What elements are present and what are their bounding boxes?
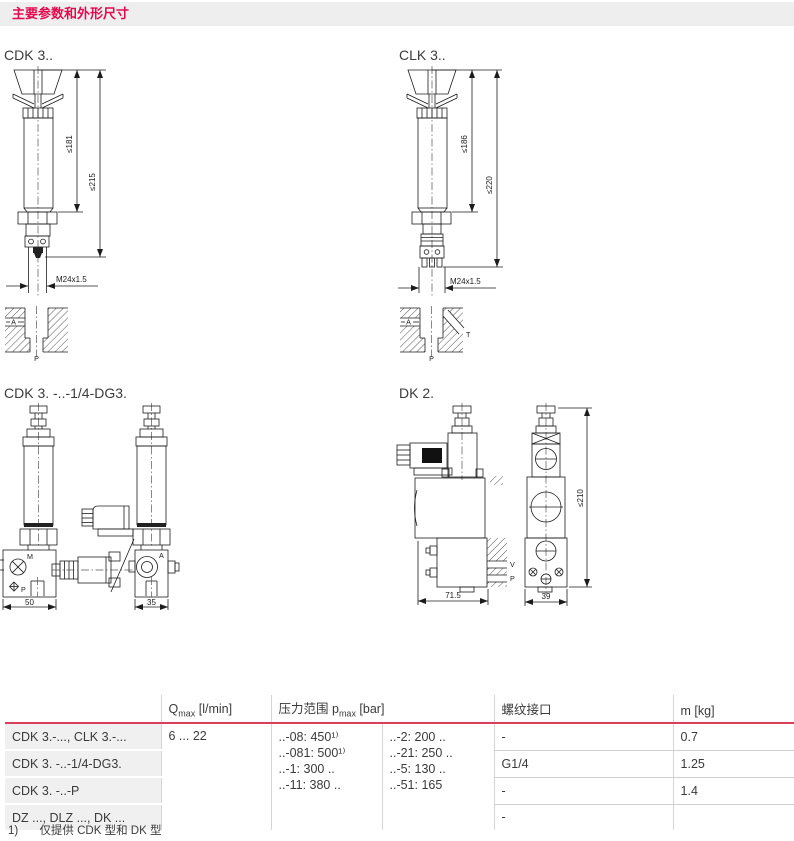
mass-cell: 1.25 xyxy=(673,750,794,777)
port-p-label: P xyxy=(429,354,434,363)
pressure-col-b-cell: ..-2: 200 .. ..-21: 250 .. ..-5: 130 .. … xyxy=(382,723,494,830)
port-p-label: P xyxy=(510,574,515,583)
thread-cell: - xyxy=(494,804,673,830)
pressure-unit: [bar] xyxy=(356,702,385,716)
port-a-label: A xyxy=(406,318,411,327)
spec-table: Qmax [l/min] 压力范围 pmax [bar] 螺纹接口 m [kg]… xyxy=(5,695,794,830)
dk2-technical-drawing: V P 71.5 39 ≤210 xyxy=(390,398,660,618)
pressure-col-a-cell: ..-08: 450¹⁾ ..-081: 500¹⁾ ..-1: 300 .. … xyxy=(271,723,382,830)
cdk3-technical-drawing: M24x1.5 ≤181 ≤215 A P xyxy=(0,60,250,365)
mass-cell: 1.4 xyxy=(673,777,794,804)
footnote: 1) 仅提供 CDK 型和 DK 型 xyxy=(8,822,161,838)
header-pressure: 压力范围 pmax [bar] xyxy=(271,695,494,723)
qmax-value-cell: 6 ... 22 xyxy=(161,723,271,830)
clk3-technical-drawing: M24x1.5 ≤186 ≤220 A P T xyxy=(390,60,650,365)
qmax-unit: [l/min] xyxy=(195,702,232,716)
qmax-main: Q xyxy=(169,702,179,716)
port-a-label: A xyxy=(11,318,16,327)
datasheet-page: 主要参数和外形尺寸 CDK 3.. CLK 3.. CDK 3. -..-1/4… xyxy=(0,0,794,841)
port-t-label: T xyxy=(466,330,471,339)
footnote-marker: 1) xyxy=(8,825,18,837)
section-header-bar: 主要参数和外形尺寸 xyxy=(0,2,794,26)
pressure-line: ..-081: 500¹⁾ xyxy=(279,745,382,761)
pressure-line: ..-2: 200 .. xyxy=(390,729,494,745)
dim-height-label: ≤210 xyxy=(576,489,585,507)
port-a-label: A xyxy=(159,551,164,560)
dim-inner-label: ≤186 xyxy=(460,135,469,153)
row-label: CDK 3. -..-1/4-DG3. xyxy=(5,750,161,777)
cdk3-dg3-technical-drawing: M P A 50 35 xyxy=(0,398,220,618)
pressure-line: ..-51: 165 xyxy=(390,777,494,793)
header-mass: m [kg] xyxy=(673,695,794,723)
dim-outer-label: ≤220 xyxy=(485,176,494,194)
mass-cell xyxy=(673,804,794,830)
pressure-line: ..-08: 450¹⁾ xyxy=(279,729,382,745)
dim-inner-label: ≤181 xyxy=(65,135,74,153)
header-qmax: Qmax [l/min] xyxy=(161,695,271,723)
thread-cell: - xyxy=(494,777,673,804)
width-50-label: 50 xyxy=(25,598,34,607)
row-label: CDK 3.-..., CLK 3.-... xyxy=(5,723,161,750)
port-v-label: V xyxy=(510,560,515,569)
dim-outer-label: ≤215 xyxy=(88,173,97,191)
pressure-line: ..-21: 250 .. xyxy=(390,745,494,761)
footnote-text: 仅提供 CDK 型和 DK 型 xyxy=(39,825,161,837)
table-header-row: Qmax [l/min] 压力范围 pmax [bar] 螺纹接口 m [kg] xyxy=(5,695,794,723)
header-thread: 螺纹接口 xyxy=(494,695,673,723)
pressure-line: ..-5: 130 .. xyxy=(390,761,494,777)
thread-cell: G1/4 xyxy=(494,750,673,777)
thread-dim-label: M24x1.5 xyxy=(450,277,481,286)
table-row: CDK 3.-..., CLK 3.-... 6 ... 22 ..-08: 4… xyxy=(5,723,794,750)
mass-cell: 0.7 xyxy=(673,723,794,750)
thread-cell: - xyxy=(494,723,673,750)
width-35-label: 35 xyxy=(147,598,156,607)
thread-dim-label: M24x1.5 xyxy=(56,275,87,284)
width-71-label: 71.5 xyxy=(445,591,461,600)
page-title: 主要参数和外形尺寸 xyxy=(0,2,129,26)
pressure-main: 压力范围 p xyxy=(279,702,339,716)
pressure-line: ..-11: 380 .. xyxy=(279,777,382,793)
pressure-line: ..-1: 300 .. xyxy=(279,761,382,777)
pressure-sub: max xyxy=(339,708,356,718)
qmax-sub: max xyxy=(178,708,195,718)
port-m-label: M xyxy=(27,552,33,561)
header-empty xyxy=(5,695,161,723)
row-label: CDK 3. -..-P xyxy=(5,777,161,804)
port-p-label: P xyxy=(21,585,26,594)
port-p-label: P xyxy=(34,354,39,363)
width-39-label: 39 xyxy=(542,592,551,601)
